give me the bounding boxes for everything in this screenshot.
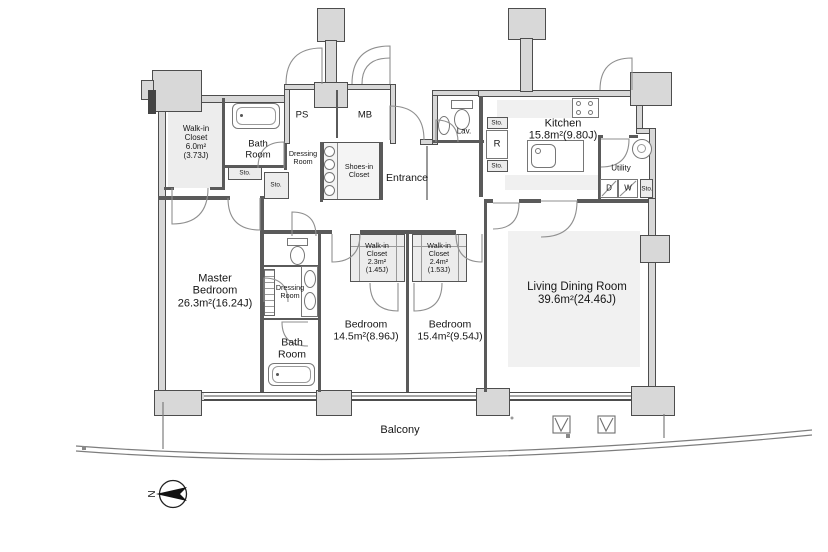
- label-dressing-room-master: Dressing Room: [276, 284, 304, 300]
- door-wic-23: [370, 283, 398, 311]
- balcony-hatch-2-v: [600, 418, 613, 431]
- balcony-hatch-1-v: [555, 418, 568, 431]
- label-lav: Lav.: [457, 128, 472, 137]
- label-master-bedroom: Master Bedroom 26.3m²(16.24J): [178, 273, 253, 310]
- label-mb: MB: [358, 111, 372, 122]
- label-refrigerator: R: [494, 140, 501, 151]
- balcony-drain-dot: [511, 417, 514, 420]
- compass: N: [147, 481, 187, 508]
- label-walkin-closet-23: Walk-in Closet 2.3m² (1.45J): [365, 242, 389, 274]
- label-sto-1: Sto.: [239, 169, 250, 176]
- label-kitchen: Kitchen 15.8m²(9.80J): [529, 118, 597, 143]
- door-bedroom-154: [456, 234, 482, 262]
- floorplan: N Walk-in Closet 6.0m² (3.73J) Bath Room…: [0, 0, 828, 552]
- door-mb-inner: [362, 58, 390, 84]
- label-balcony: Balcony: [380, 424, 419, 436]
- label-shoes-in-closet: Shoes-in Closet: [345, 163, 373, 179]
- label-bedroom-145: Bedroom 14.5m²(8.96J): [333, 319, 398, 343]
- balcony-rail-tick-2: [566, 434, 570, 438]
- label-walkin-closet-24: Walk-in Closet 2.4m² (1.53J): [427, 242, 451, 274]
- label-ps: PS: [296, 111, 309, 122]
- label-living-dining: Living Dining Room 39.6m²(24.46J): [527, 281, 627, 307]
- door-entrance: [390, 106, 424, 140]
- balcony-rail-outer: [76, 430, 812, 454]
- door-wic-24: [414, 283, 442, 311]
- door-ps: [286, 48, 322, 84]
- label-sto-2: Sto.: [270, 181, 281, 188]
- plan-linework: N: [0, 0, 828, 552]
- door-lav: [436, 120, 458, 142]
- compass-n-label: N: [147, 490, 158, 497]
- door-master: [228, 198, 260, 230]
- label-washer: W: [624, 185, 632, 194]
- balcony-rail-tick-1: [82, 446, 86, 450]
- balcony-rail-inner: [76, 435, 812, 459]
- label-sto-5: Sto.: [641, 185, 652, 192]
- door-wic-main: [172, 188, 208, 224]
- label-sto-4: Sto.: [491, 162, 502, 169]
- door-kitchen-service: [600, 58, 632, 90]
- label-bedroom-154: Bedroom 15.4m²(9.54J): [417, 319, 482, 343]
- label-walkin-closet-main: Walk-in Closet 6.0m² (3.73J): [183, 125, 209, 161]
- label-sto-3: Sto.: [491, 119, 502, 126]
- label-dressing-room-entry: Dressing Room: [289, 150, 317, 166]
- label-bath-room-master: Bath Room: [278, 337, 306, 361]
- door-kitchen-ldr: [541, 201, 577, 237]
- label-dryer: D: [606, 185, 612, 194]
- label-bath-room-main: Bath Room: [245, 139, 270, 160]
- door-toilet-master: [292, 212, 316, 236]
- door-bedroom-145: [332, 234, 360, 262]
- label-utility: Utility: [611, 165, 631, 174]
- label-entrance: Entrance: [386, 173, 428, 185]
- door-mb-outer: [352, 46, 390, 84]
- door-hall-ldr: [493, 203, 519, 229]
